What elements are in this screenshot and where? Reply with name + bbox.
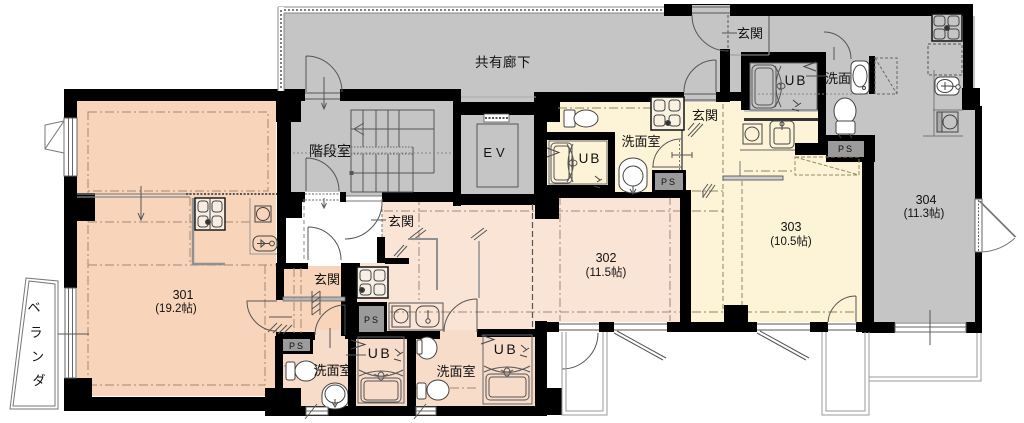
svg-text:PS: PS (289, 341, 305, 351)
svg-text:玄関: 玄関 (388, 214, 414, 229)
svg-text:PS: PS (364, 315, 380, 325)
svg-text:ダ: ダ (32, 373, 45, 388)
svg-text:洗面: 洗面 (825, 71, 851, 86)
svg-text:(11.5帖): (11.5帖) (586, 265, 627, 279)
svg-text:302: 302 (596, 251, 617, 265)
svg-text:UB: UB (785, 73, 808, 88)
svg-text:洗面室: 洗面室 (621, 134, 660, 149)
svg-text:EV: EV (483, 145, 508, 160)
svg-text:ン: ン (31, 349, 44, 364)
svg-text:(19.2帖): (19.2帖) (155, 301, 197, 315)
svg-text:玄関: 玄関 (314, 272, 340, 287)
svg-text:PS: PS (661, 177, 677, 187)
svg-text:ラ: ラ (29, 325, 42, 340)
svg-text:玄関: 玄関 (692, 108, 718, 123)
svg-text:洗面室: 洗面室 (436, 364, 475, 379)
svg-text:共有廊下: 共有廊下 (475, 54, 531, 70)
svg-text:(11.3帖): (11.3帖) (904, 206, 945, 220)
svg-text:(10.5帖): (10.5帖) (770, 234, 812, 248)
svg-text:301: 301 (173, 288, 194, 302)
svg-text:PS: PS (838, 144, 854, 154)
svg-text:玄関: 玄関 (737, 26, 763, 41)
svg-text:洗面室: 洗面室 (313, 363, 352, 378)
svg-text:UB: UB (494, 341, 518, 357)
svg-text:階段室: 階段室 (309, 143, 351, 159)
svg-text:UB: UB (579, 151, 602, 166)
svg-text:ベ: ベ (27, 300, 40, 315)
svg-text:304: 304 (916, 193, 937, 207)
svg-text:303: 303 (781, 220, 802, 234)
svg-text:UB: UB (368, 345, 392, 361)
